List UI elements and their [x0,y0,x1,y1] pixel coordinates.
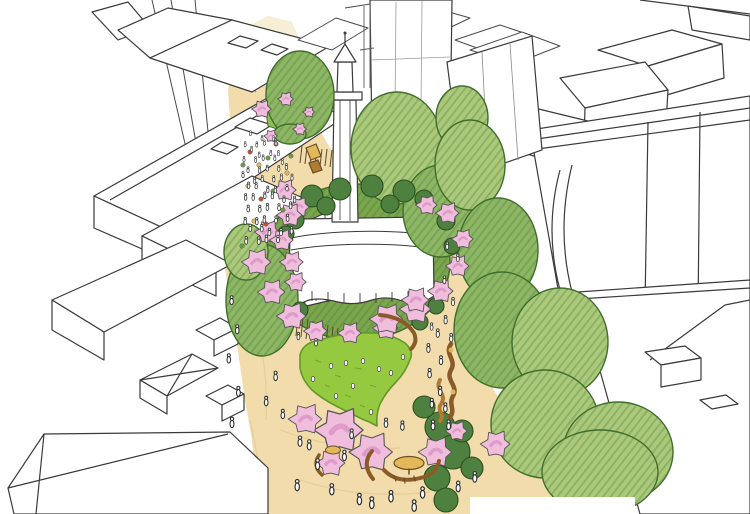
person-figure [257,237,260,245]
person-figure [258,152,260,158]
person-figure [286,184,289,191]
person-figure [258,205,261,212]
bird-figure [351,383,354,388]
person-figure [268,228,271,236]
person-figure [242,171,244,177]
person-figure [280,174,282,180]
tree-canopy [435,120,505,210]
person-figure [244,217,247,224]
person-figure [438,386,442,395]
person-figure [260,224,263,232]
person-figure [444,403,448,412]
bird-figure [311,376,314,381]
person-figure [249,131,251,136]
person-figure [235,325,239,334]
person-figure [245,237,248,245]
person-figure [473,472,477,483]
person-figure [444,315,447,323]
person-figure [243,156,245,162]
bird-figure [329,363,332,368]
person-figure [412,500,416,511]
person-figure [315,339,318,347]
person-figure [274,186,277,193]
person-figure [278,165,280,171]
person-figure [430,398,434,408]
market-stall-dot [240,244,244,248]
person-figure [265,235,268,243]
person-figure [273,176,275,182]
person-figure [401,421,405,430]
person-figure [255,182,258,189]
person-figure [281,409,285,418]
person-figure [456,481,460,492]
person-figure [247,167,249,173]
person-figure [271,192,274,199]
bird-figure [369,409,372,414]
person-figure [357,493,361,504]
person-figure [278,204,281,211]
person-figure [295,479,299,490]
shrub [317,197,335,215]
bird-figure [401,354,404,359]
person-figure [293,196,296,203]
shrub [461,457,483,479]
shrub [361,175,383,197]
person-figure [283,196,286,203]
person-figure [244,193,247,200]
person-figure [330,484,334,495]
bird-figure [334,393,337,398]
person-figure [274,371,278,380]
person-figure [247,182,250,189]
person-figure [270,150,272,156]
bird-figure [389,370,392,375]
market-stall-dot [259,197,263,201]
person-figure [450,333,453,342]
person-figure [431,420,435,430]
white-band [470,497,635,514]
person-figure [384,418,388,427]
person-figure [264,396,268,406]
person-figure [251,146,253,152]
person-figure [258,167,260,173]
person-figure [456,254,459,262]
person-figure [290,227,293,235]
shrub [381,195,399,213]
person-figure [230,296,233,305]
person-figure [274,155,276,161]
person-figure [247,205,250,212]
bird-figure [361,358,364,363]
market-stall-dot [266,156,270,160]
person-figure [266,165,268,171]
person-figure [446,242,449,250]
market-stall-dot [289,154,293,158]
person-figure [262,155,264,161]
person-figure [289,202,292,209]
small-table [326,446,341,454]
person-figure [443,276,446,284]
person-figure [277,150,279,156]
bird-figure [377,366,380,371]
sketch-canvas [0,0,750,514]
person-figure [447,420,451,430]
person-figure [297,332,300,340]
person-figure [252,194,255,201]
person-figure [263,140,265,145]
person-figure [451,297,454,305]
person-figure [254,157,256,163]
person-figure [264,192,267,199]
person-figure [316,459,320,470]
person-figure [298,436,302,446]
person-figure [342,450,346,461]
person-figure [427,344,430,353]
round-table [394,457,424,470]
person-figure [261,175,263,181]
person-figure [266,203,269,210]
shrub [329,178,351,200]
shrub [434,488,458,512]
person-figure [291,174,293,180]
person-figure [230,417,234,427]
market-stall-dot [257,163,261,167]
person-figure [275,216,278,223]
person-figure [249,224,252,232]
sketch-frame [0,0,750,514]
person-figure [261,135,263,140]
person-figure [256,142,258,147]
person-figure [280,228,283,236]
person-figure [285,163,287,169]
market-stall-dot [285,171,289,175]
person-figure [307,440,311,450]
person-figure [275,140,277,145]
person-figure [430,323,433,331]
bird-figure [344,360,347,365]
flat-roof [8,432,268,514]
person-figure [237,386,241,396]
person-figure [277,235,280,243]
person-figure [428,369,432,378]
market-stall-dot [281,208,285,212]
person-figure [255,218,258,225]
person-figure [370,497,375,509]
person-figure [281,159,283,165]
person-figure [286,214,289,221]
person-figure [267,186,270,193]
tower-upper-stage [337,62,353,92]
person-figure [244,142,246,147]
person-figure [273,136,275,141]
person-figure [389,490,393,501]
person-figure [420,487,424,498]
person-figure [439,356,442,365]
market-stall-dot [241,163,245,167]
person-figure [436,329,439,337]
person-figure [263,216,266,223]
person-figure [350,429,354,439]
person-figure [227,354,231,363]
